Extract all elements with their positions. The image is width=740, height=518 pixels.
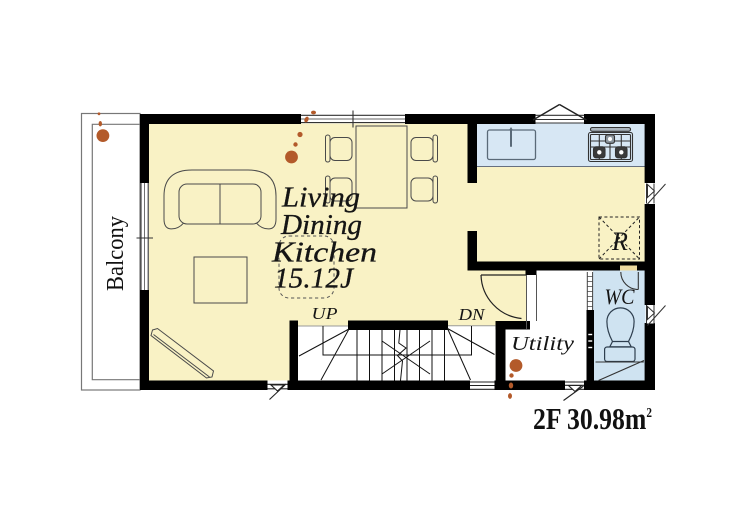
- svg-text:2F 30.98m2: 2F 30.98m2: [533, 403, 652, 437]
- svg-text:15.12J: 15.12J: [274, 264, 355, 295]
- svg-text:R: R: [611, 227, 628, 256]
- svg-text:Dining: Dining: [280, 210, 362, 241]
- svg-text:UP: UP: [312, 304, 338, 323]
- svg-text:DN: DN: [457, 305, 486, 324]
- svg-text:WC: WC: [605, 284, 635, 309]
- svg-text:Utility: Utility: [511, 333, 574, 355]
- svg-text:Balcony: Balcony: [103, 216, 129, 291]
- svg-text:Living: Living: [281, 183, 360, 214]
